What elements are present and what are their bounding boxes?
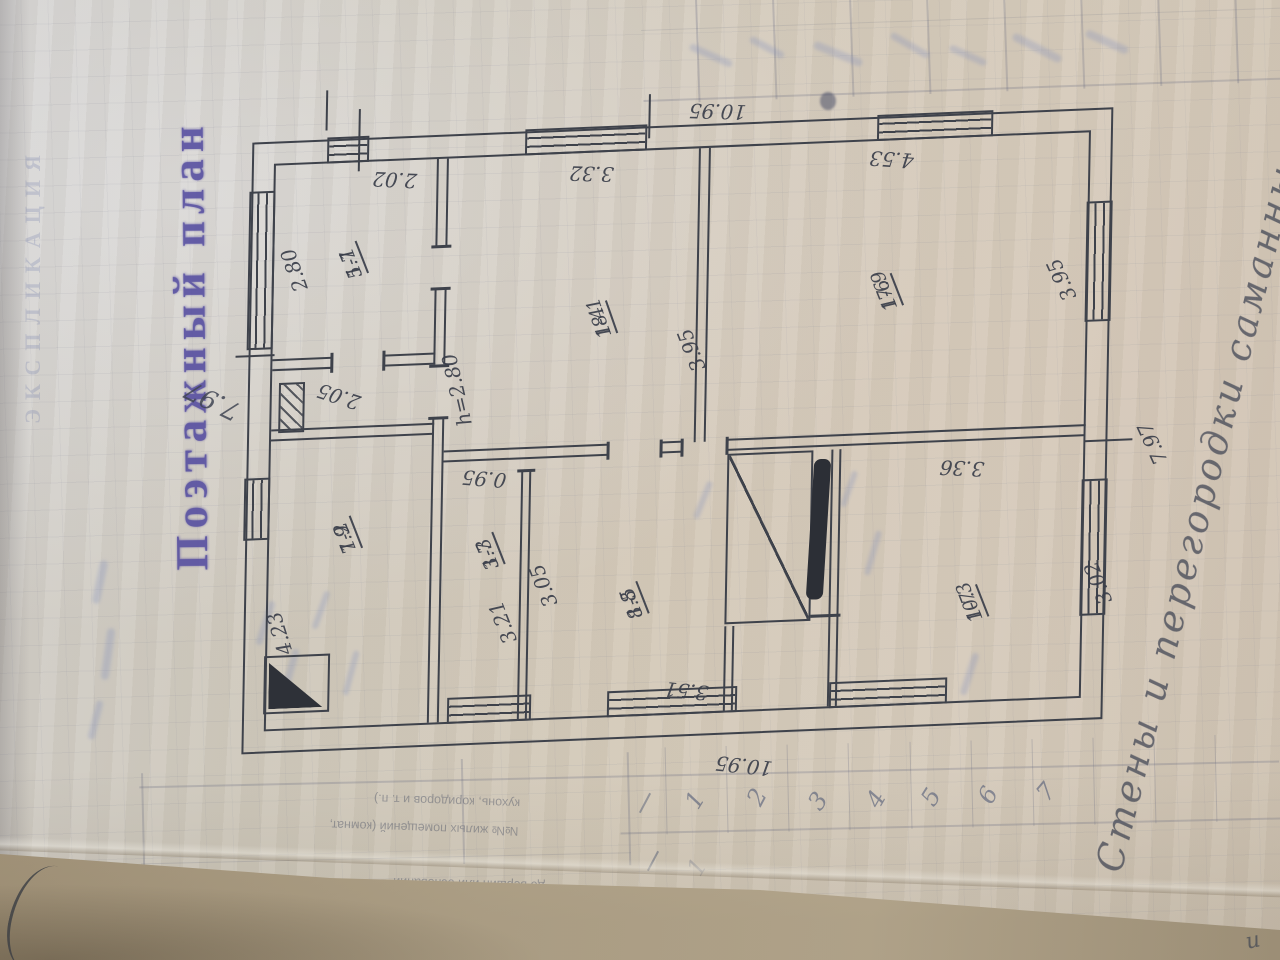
door-jamb: [330, 353, 333, 373]
door-jamb: [606, 442, 609, 460]
dimension-095: 0.95: [460, 465, 507, 493]
window-top-room14: [525, 124, 647, 155]
door-jamb: [680, 439, 683, 457]
dimension-336: 3.36: [939, 455, 986, 481]
dimension-202: 2.02: [371, 167, 418, 193]
explication-bleed-text: ЭКСПЛИКАЦИЯ: [20, 146, 46, 424]
wall-room11-bottom-b: [384, 353, 435, 367]
wall-room11-bottom-a: [272, 357, 332, 371]
window-left-room12: [243, 478, 270, 541]
door-jamb: [659, 439, 662, 457]
window-top-room16: [877, 110, 993, 141]
dimension-top-overall: 10.95: [688, 99, 747, 125]
door-jamb: [725, 437, 728, 455]
window-left-room11: [247, 191, 276, 351]
title-stamp: Поэтажный план: [162, 119, 219, 571]
wall-room11-right: [435, 159, 449, 248]
closet-hatched: [278, 382, 305, 433]
stray-stroke: [326, 90, 329, 130]
dimension-332: 3.32: [568, 161, 614, 186]
window-right-room16: [1085, 201, 1113, 322]
stove-with-diagonal: [724, 450, 813, 624]
window-top-small: [327, 136, 369, 164]
door-jamb: [382, 351, 385, 371]
dimension-453: 4.53: [868, 146, 915, 173]
photographed-floor-plan-page: ЭКСПЛИКАЦИЯ: [0, 0, 1280, 960]
